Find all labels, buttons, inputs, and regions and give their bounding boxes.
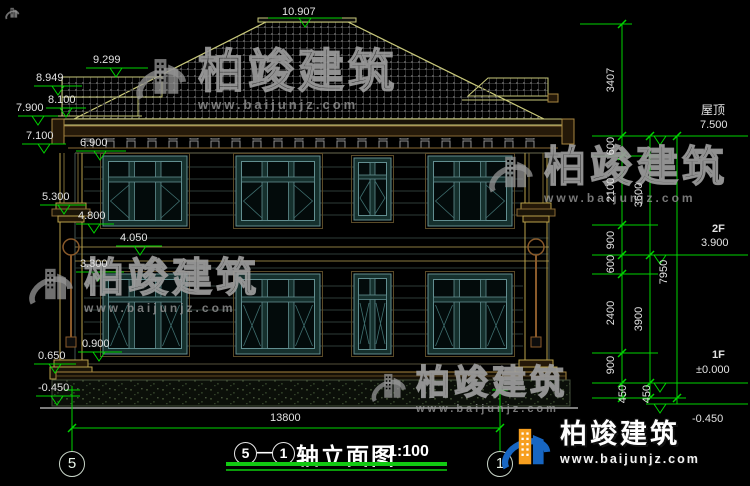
title-underline [226, 462, 447, 466]
windows [101, 154, 515, 357]
elevation-label: 0.900 [82, 338, 110, 350]
elevation-label: 6.900 [80, 137, 108, 149]
level-value: 7.500 [700, 119, 728, 131]
elevation-label: 9.299 [93, 54, 121, 66]
brand-url: www.baijunjz.com [560, 452, 700, 466]
dim-value: 2400 [604, 291, 618, 335]
elevation-label: 8.100 [48, 94, 76, 106]
elevation-label: 3.300 [80, 258, 108, 270]
elevation-label: -0.450 [38, 382, 69, 394]
right-pilaster [515, 153, 557, 379]
title-dash: — [257, 444, 273, 462]
dim-value: 600 [604, 242, 618, 286]
level-name: 屋顶 [701, 104, 725, 116]
elevation-label: 7.900 [16, 102, 44, 114]
dim-value: 3900 [632, 297, 646, 341]
elevation-drawing: 柏竣建筑 www.baijunjz.com 柏竣建筑 www.baijunjz.… [0, 0, 750, 486]
dim-value: 450 [640, 372, 654, 416]
dim-value: 7950 [657, 250, 671, 294]
elevation-label: 8.949 [36, 72, 64, 84]
dim-value: 2100 [604, 168, 618, 212]
elevation-label: 10.907 [282, 6, 316, 18]
level-value: 3.900 [701, 237, 729, 249]
grid-bubble-5: 5 [59, 451, 85, 477]
cornice [52, 119, 574, 153]
dim-value: 3407 [604, 58, 618, 102]
cad-linework [0, 0, 750, 486]
brand-name: 柏竣建筑 [560, 420, 700, 450]
brand-logo: 柏竣建筑 www.baijunjz.com [494, 420, 700, 482]
dim-value: 450 [616, 372, 630, 416]
level-name: 2F [712, 223, 725, 235]
elevation-label: 0.650 [38, 350, 66, 362]
title-underline-2 [226, 469, 447, 471]
level-name: 1F [712, 349, 725, 361]
dim-overall-width: 13800 [270, 412, 301, 424]
baijun-logo-color-icon [494, 420, 556, 482]
drawing-scale: 1:100 [388, 443, 429, 461]
elevation-label: 4.050 [120, 232, 148, 244]
elevation-label: 5.300 [42, 191, 70, 203]
dim-value: 600 [604, 124, 618, 168]
elevation-label: 4.800 [78, 210, 106, 222]
dim-value: 3600 [632, 173, 646, 217]
level-value: ±0.000 [696, 364, 730, 376]
elevation-label: 7.100 [26, 130, 54, 142]
